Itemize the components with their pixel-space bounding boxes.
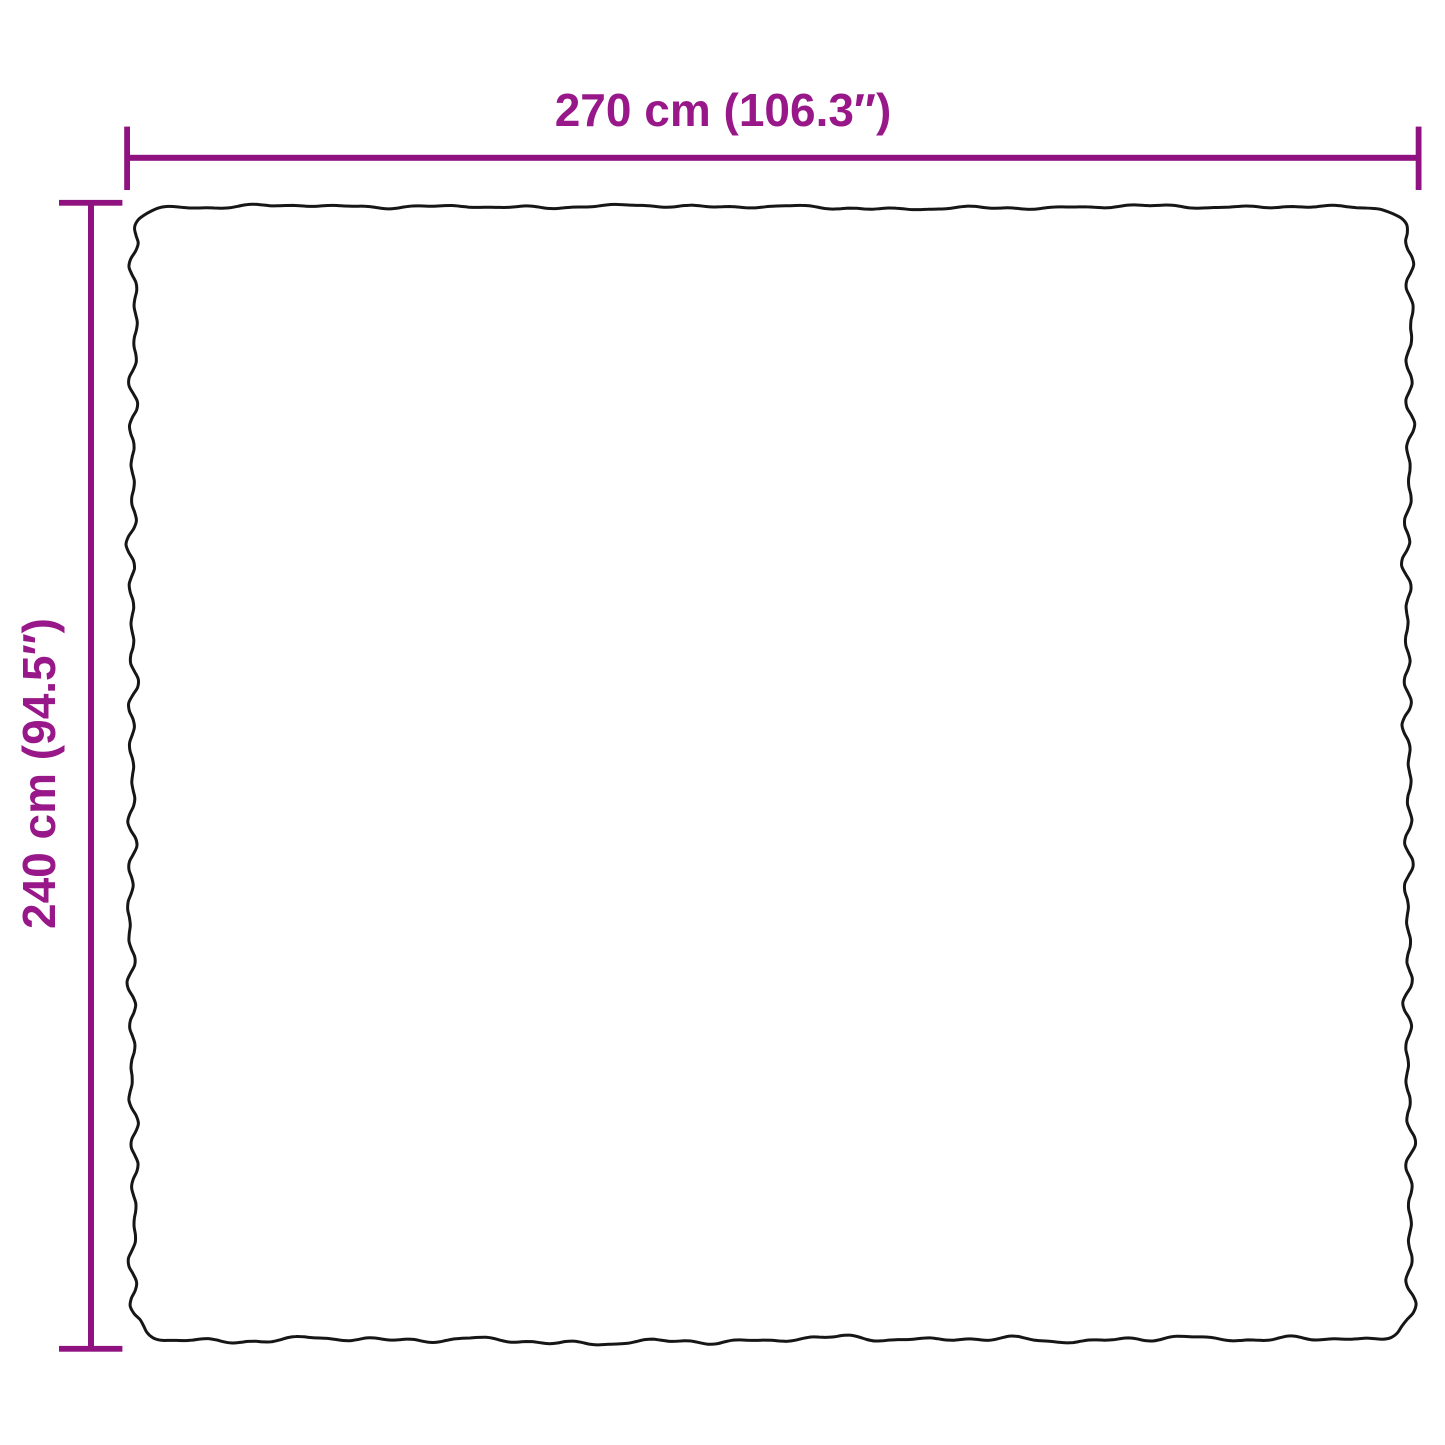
svg-text:270 cm (106.3″): 270 cm (106.3″) bbox=[555, 84, 892, 136]
svg-text:240 cm (94.5″): 240 cm (94.5″) bbox=[13, 618, 65, 929]
